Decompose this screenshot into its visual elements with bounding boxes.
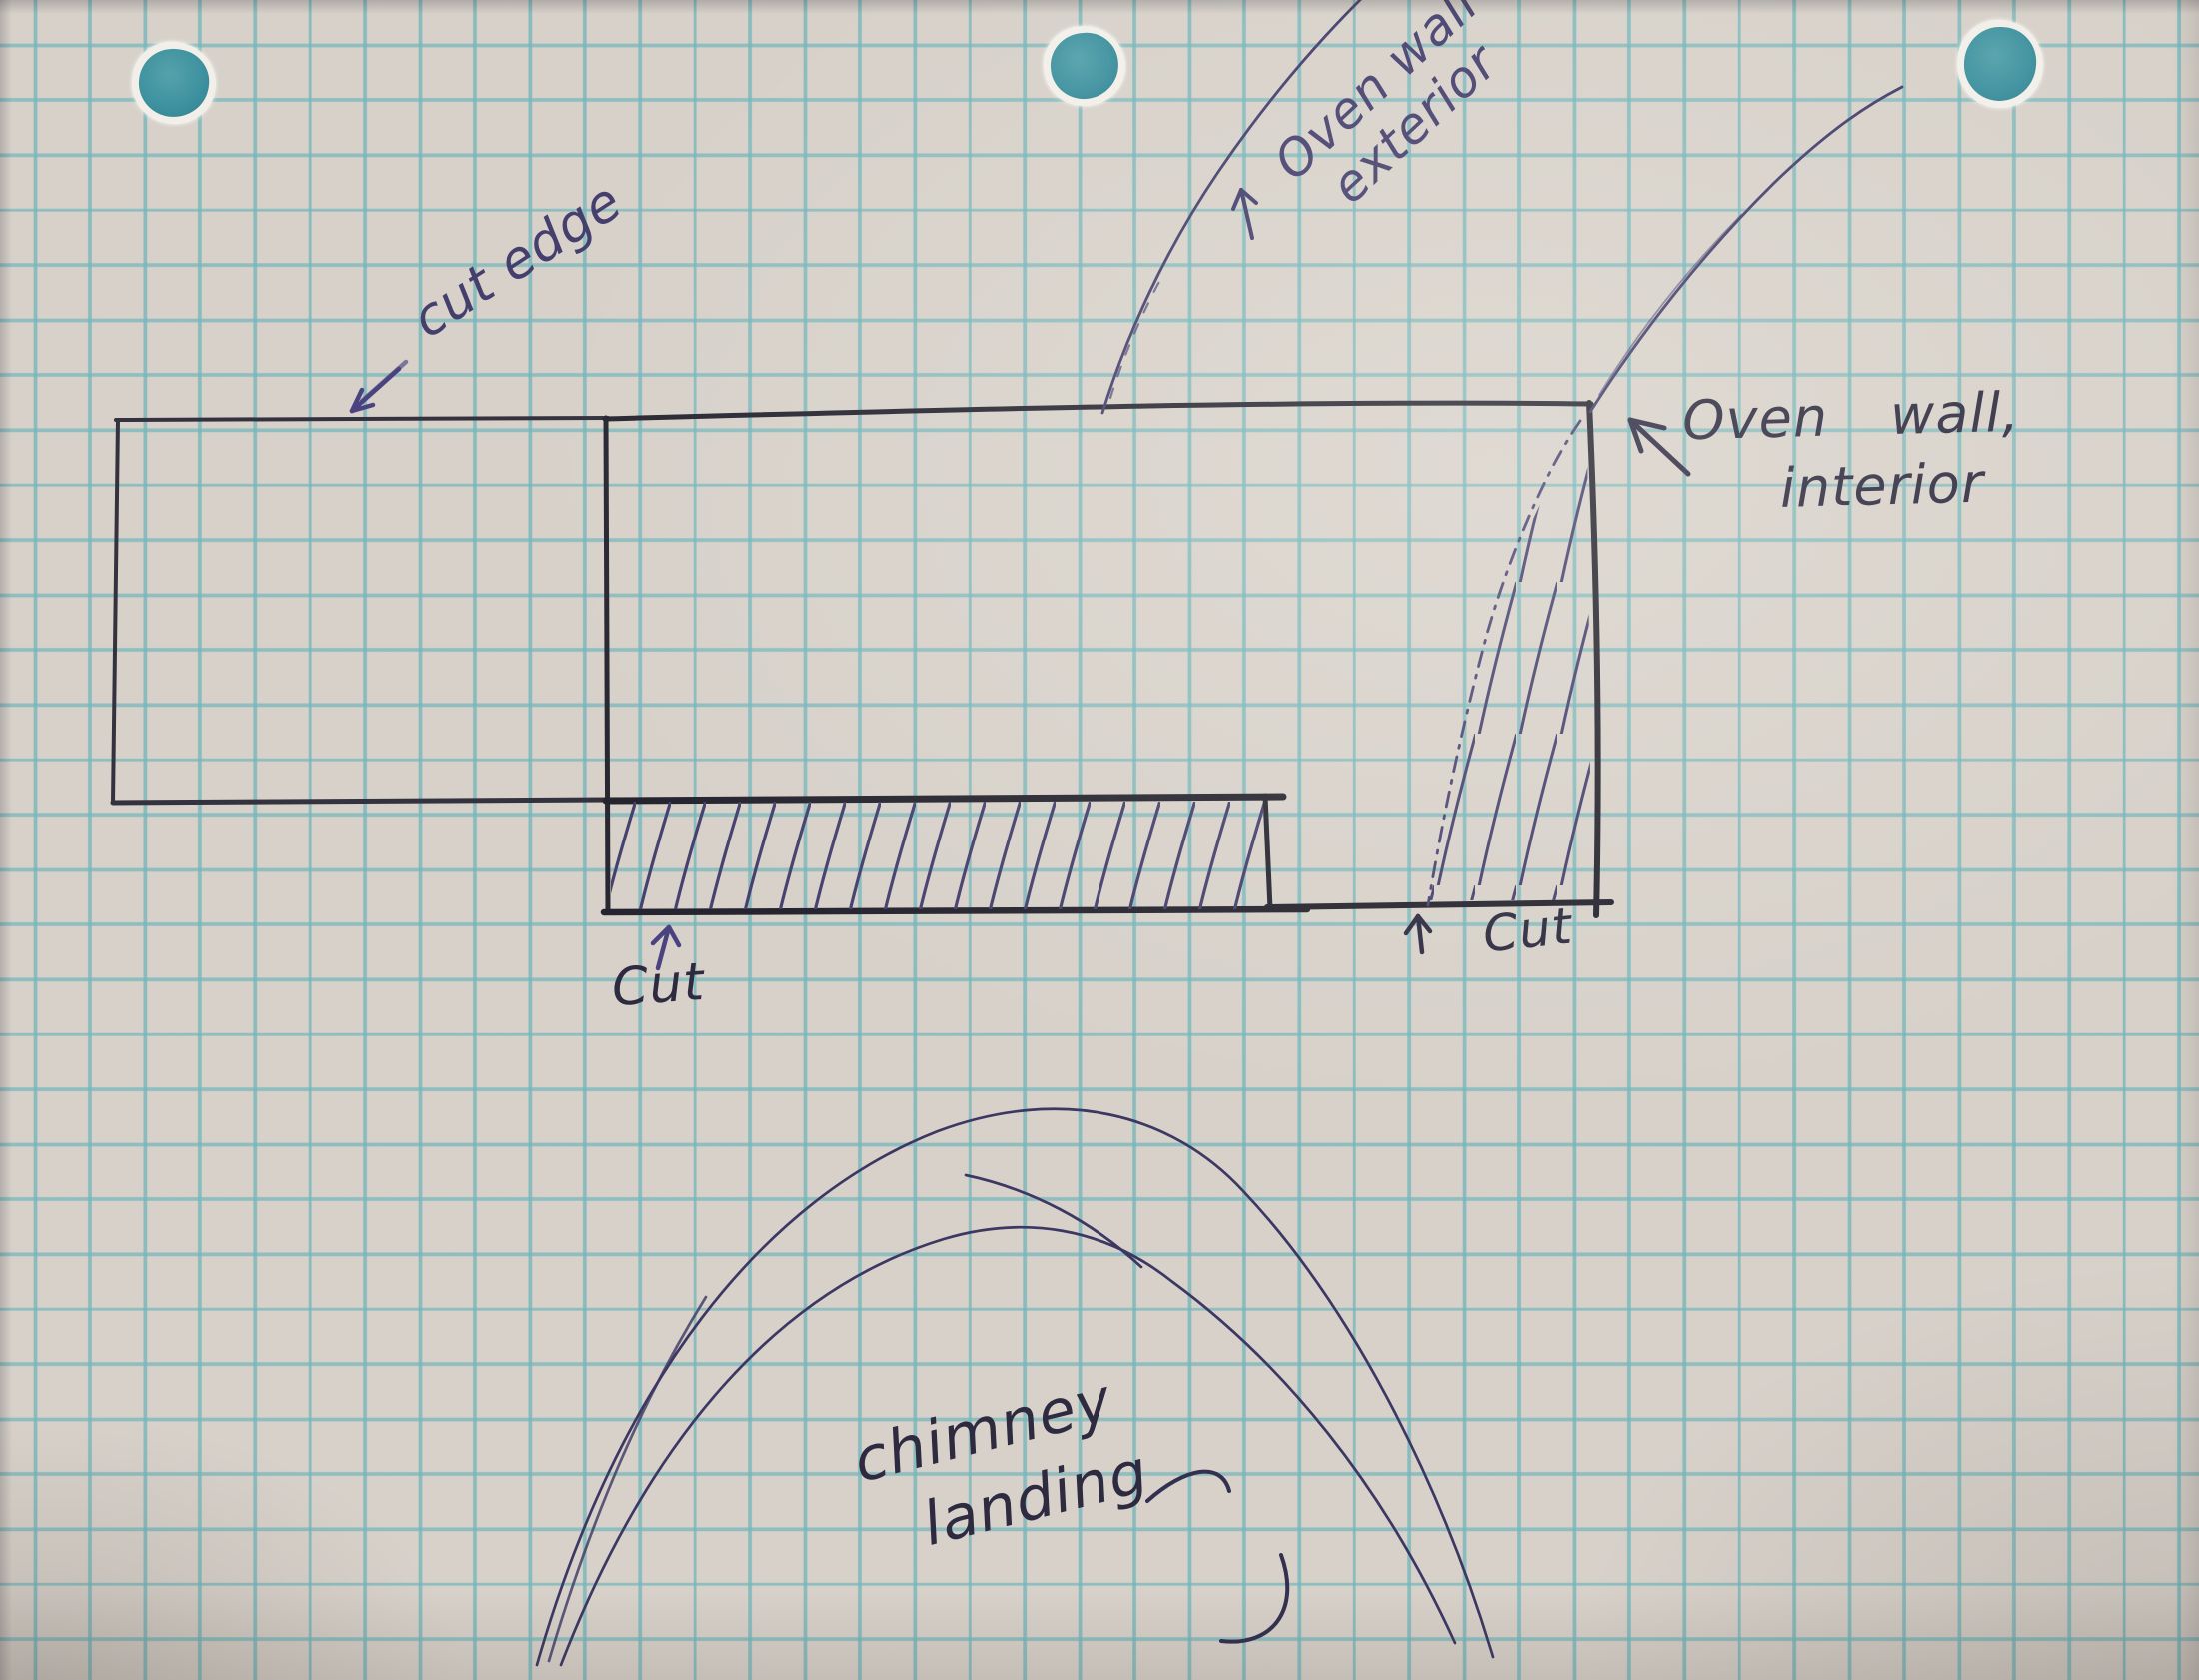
interior-wall-curve-upper <box>1590 87 1902 412</box>
cut-label-right: Cut <box>1480 896 1575 963</box>
oven-wall-interior-line1: Oven wall, <box>1681 381 2020 453</box>
cut-edge-arrow <box>352 362 406 411</box>
oven-wall-interior-label: Oven wall, interior <box>1681 378 2022 527</box>
left-rectangle-outline <box>113 418 608 803</box>
handwriting-flourishes <box>1147 1472 1287 1642</box>
oven-exterior-label-arrow <box>1233 190 1256 238</box>
photo-of-sketch: cut edge Oven wall exterior Oven wall, i… <box>0 0 2199 1680</box>
interior-wall-hatch <box>1399 415 1599 909</box>
cut-right-arrow <box>1406 916 1430 952</box>
cut-label-left: Cut <box>610 952 707 1018</box>
oven-interior-label-arrow <box>1630 420 1688 474</box>
hearth-hatch-strip <box>605 796 1269 915</box>
oven-wall-interior-line2: interior <box>1779 448 2022 524</box>
